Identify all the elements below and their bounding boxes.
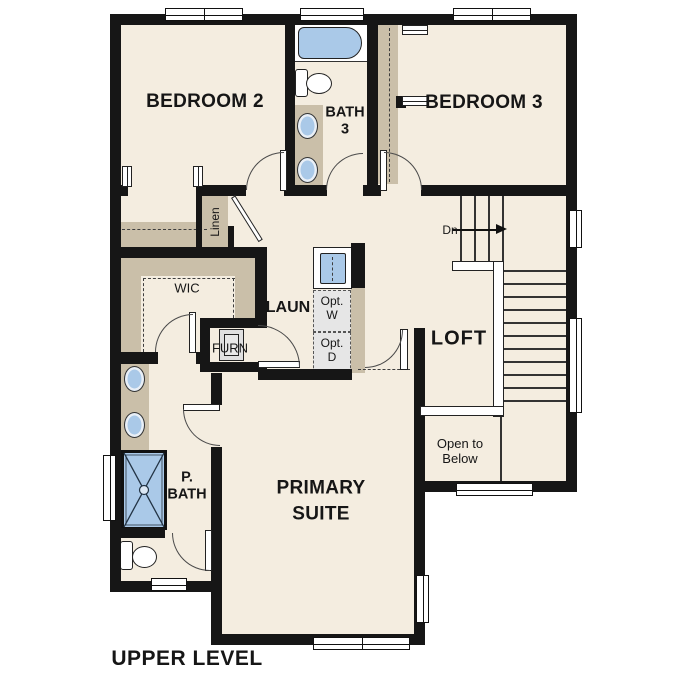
window (416, 575, 429, 623)
wall (211, 447, 222, 645)
stair-tread (504, 335, 566, 337)
stair-tread (504, 374, 566, 376)
down-arrow-icon (496, 224, 507, 234)
stair-tread (504, 387, 566, 389)
wall (351, 243, 365, 288)
bedroom2-label: BEDROOM 2 (146, 91, 264, 113)
sink-icon (124, 412, 145, 438)
window (165, 8, 243, 21)
window (300, 8, 364, 21)
wall (228, 185, 246, 196)
wic-shelf-line-left (143, 278, 144, 352)
toilet-bowl-icon (132, 546, 157, 568)
laundry-shelf (351, 288, 365, 373)
shower-icon (121, 450, 167, 530)
loft-label: LOFT (431, 328, 487, 351)
window (151, 578, 187, 591)
wall (228, 226, 234, 248)
stair-tread (504, 322, 566, 324)
wall (421, 185, 566, 196)
plan-title: UPPER LEVEL (111, 647, 262, 671)
primary-suite-label: PRIMARY SUITE (276, 475, 365, 526)
stairs-down-label: Dn (442, 224, 457, 238)
opt-washer-label: Opt. W (321, 295, 344, 323)
window (103, 455, 116, 521)
bedroom2-closet-shelf (121, 222, 208, 247)
wall (566, 14, 577, 492)
wic-label: WIC (174, 282, 199, 297)
bathtub-icon (298, 27, 362, 59)
window (456, 483, 533, 496)
stair-tread (504, 348, 566, 350)
open-below-divider (500, 417, 502, 481)
wall (284, 185, 327, 196)
primary-bath-label: P. BATH (167, 469, 206, 502)
closet-door-jamb (193, 166, 203, 187)
laundry-sink-divider (332, 257, 333, 281)
wall (110, 247, 255, 258)
closet-door-jamb (122, 166, 132, 187)
down-arrow-line (452, 229, 498, 231)
bedroom2-closet-rod (122, 229, 207, 230)
window (313, 637, 410, 650)
toilet-bowl-icon (306, 73, 332, 94)
wall (200, 362, 267, 372)
stair-tread (504, 296, 566, 298)
sink-icon (297, 113, 318, 139)
bedroom3-label: BEDROOM 3 (425, 92, 543, 114)
sink-icon (297, 157, 318, 183)
wall (363, 185, 381, 196)
stair-tread (504, 309, 566, 311)
furnace-label: FURN (212, 342, 248, 357)
wall (258, 369, 352, 380)
window (453, 8, 531, 21)
wall (196, 196, 202, 248)
loft-railing (420, 406, 504, 416)
wic-shelf-right (235, 258, 255, 318)
wall (110, 352, 158, 364)
wall (121, 528, 165, 538)
linen-label: Linen (209, 207, 223, 236)
wall (367, 14, 378, 196)
upper-level-floor-plan: BEDROOM 2 BATH 3 BEDROOM 3 Linen WIC LAU… (0, 0, 687, 687)
stair-tread (504, 270, 566, 272)
wic-shelf-line-right (233, 278, 234, 318)
laundry-sink-icon (320, 253, 346, 284)
sink-icon (124, 366, 145, 392)
closet-door-jamb (402, 96, 428, 106)
bath3-label: BATH 3 (325, 104, 364, 137)
stair-tread (504, 361, 566, 363)
stair-tread (504, 283, 566, 285)
open-to-below-label: Open to Below (437, 437, 483, 467)
closet-door-jamb (402, 25, 428, 35)
laundry-label: LAUN (266, 299, 310, 317)
stair-railing (493, 261, 504, 417)
wall (200, 318, 267, 328)
opt-dryer-label: Opt. D (321, 337, 344, 365)
wic-shelf-line-top (143, 278, 235, 279)
stair-tread (504, 400, 566, 402)
window (569, 210, 582, 248)
window (569, 318, 582, 413)
wall (211, 373, 222, 405)
